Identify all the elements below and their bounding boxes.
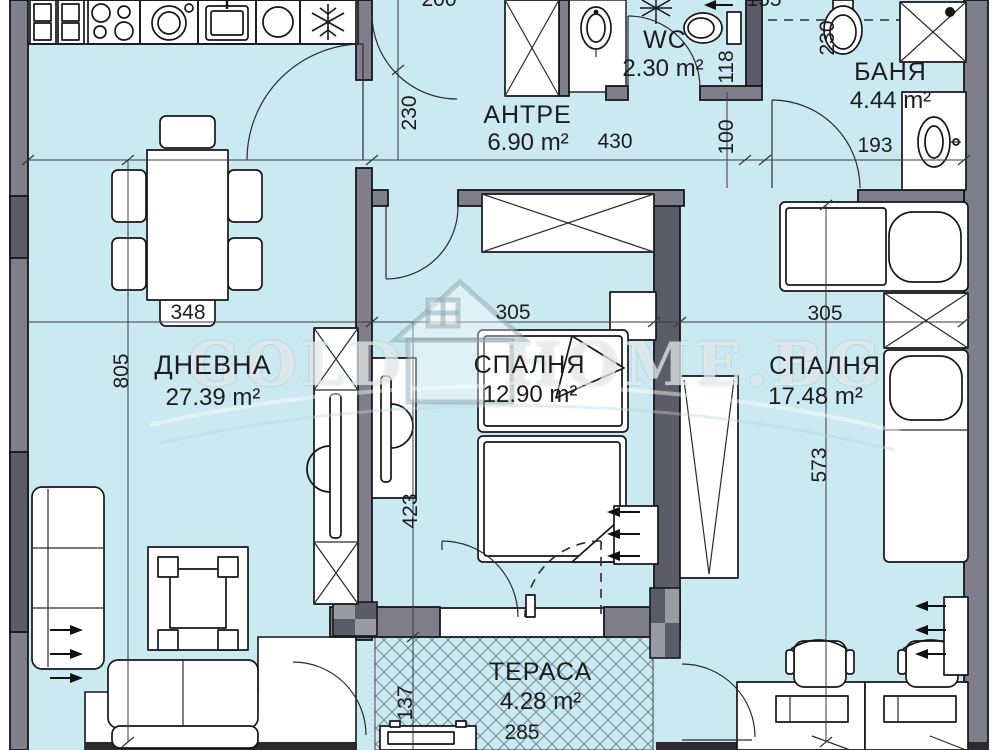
column-terrace-right bbox=[650, 588, 680, 658]
room-label-spalnya2: СПАЛНЯ bbox=[740, 352, 910, 381]
room-area-dnevna: 27.39 m² bbox=[128, 384, 298, 412]
coffee-table bbox=[148, 547, 248, 650]
wall-stub-antre bbox=[372, 190, 388, 206]
wall-left-dark-segment2 bbox=[10, 452, 28, 632]
room-label-wc: WC bbox=[630, 26, 700, 55]
room-label-terasa: ТЕРАСА bbox=[468, 658, 613, 687]
room-area-banya: 4.44 m² bbox=[838, 87, 943, 115]
tv-unit-bedroom1 bbox=[372, 358, 416, 498]
dim-bath-193: 193 bbox=[845, 134, 905, 158]
room-label-banya: БАНЯ bbox=[843, 58, 938, 87]
shower-icon bbox=[900, 2, 966, 62]
dim-wc-118: 118 bbox=[715, 37, 739, 97]
dim-terrace-285: 285 bbox=[492, 721, 552, 745]
wall-left-dark-segment bbox=[10, 196, 28, 258]
dining-chair bbox=[160, 116, 215, 148]
dim-terrace-137: 137 bbox=[394, 673, 418, 733]
room-area-terasa: 4.28 m² bbox=[478, 688, 603, 716]
dim-living-805: 805 bbox=[110, 341, 134, 401]
room-label-antre: АНТРЕ bbox=[465, 101, 590, 130]
room-label-spalnya1: СПАЛНЯ bbox=[462, 351, 597, 380]
dim-bedroom1-305: 305 bbox=[483, 301, 543, 325]
office-chair bbox=[786, 640, 854, 687]
room-area-spalnya2: 17.48 m² bbox=[738, 383, 893, 411]
wall-wc-bottom-left bbox=[606, 86, 628, 100]
dining-chair bbox=[228, 170, 262, 222]
dim-bedroom2-305: 305 bbox=[795, 302, 855, 326]
dim-hall-230: 230 bbox=[398, 83, 422, 143]
dim-corridor-100: 100 bbox=[715, 107, 739, 167]
dining-chair bbox=[112, 238, 146, 290]
bed-single bbox=[478, 436, 626, 562]
wardrobe-bedroom1 bbox=[482, 194, 654, 252]
radiator-bedroom2 bbox=[944, 597, 968, 675]
floor-plan: GOLD HOME.BG АНТРЕ 6.90 m² WC 2.30 m² БА… bbox=[0, 0, 1000, 750]
kitchen-counter bbox=[28, 0, 358, 44]
room-label-dnevna: ДНЕВНА bbox=[128, 350, 298, 381]
desk bbox=[865, 682, 968, 750]
wall-exterior-left bbox=[10, 0, 28, 750]
dim-top-155: 155 bbox=[734, 0, 794, 12]
hall-wardrobe bbox=[505, 0, 559, 96]
dining-chair bbox=[112, 170, 146, 222]
pillow bbox=[889, 212, 961, 282]
dim-hall-430: 430 bbox=[585, 130, 645, 154]
dim-bedroom2-573: 573 bbox=[808, 435, 832, 495]
tv-unit-living bbox=[307, 328, 358, 604]
dining-chair bbox=[228, 238, 262, 290]
room-area-spalnya1: 12.90 m² bbox=[465, 381, 595, 409]
balcony-door-sill bbox=[435, 608, 607, 637]
bed-single bbox=[884, 350, 968, 562]
room-area-wc: 2.30 m² bbox=[608, 55, 718, 83]
open-wardrobe bbox=[680, 376, 738, 578]
desk bbox=[737, 682, 865, 750]
bed-single bbox=[780, 202, 968, 291]
wardrobe-bedroom2 bbox=[884, 293, 968, 348]
column-terrace-left bbox=[333, 602, 377, 636]
room-area-antre: 6.90 m² bbox=[468, 129, 588, 157]
dim-dining-348: 348 bbox=[158, 301, 218, 325]
dim-bath-230: 230 bbox=[816, 8, 840, 68]
wall-wc-right bbox=[746, 0, 762, 86]
dining-table bbox=[147, 150, 228, 300]
wall-bedrooms-shared bbox=[654, 194, 680, 640]
wall-niche-left bbox=[559, 0, 569, 96]
dim-bedroom1-423: 423 bbox=[399, 481, 423, 541]
dim-top-200: 200 bbox=[409, 0, 469, 12]
tv-icon bbox=[330, 394, 341, 538]
